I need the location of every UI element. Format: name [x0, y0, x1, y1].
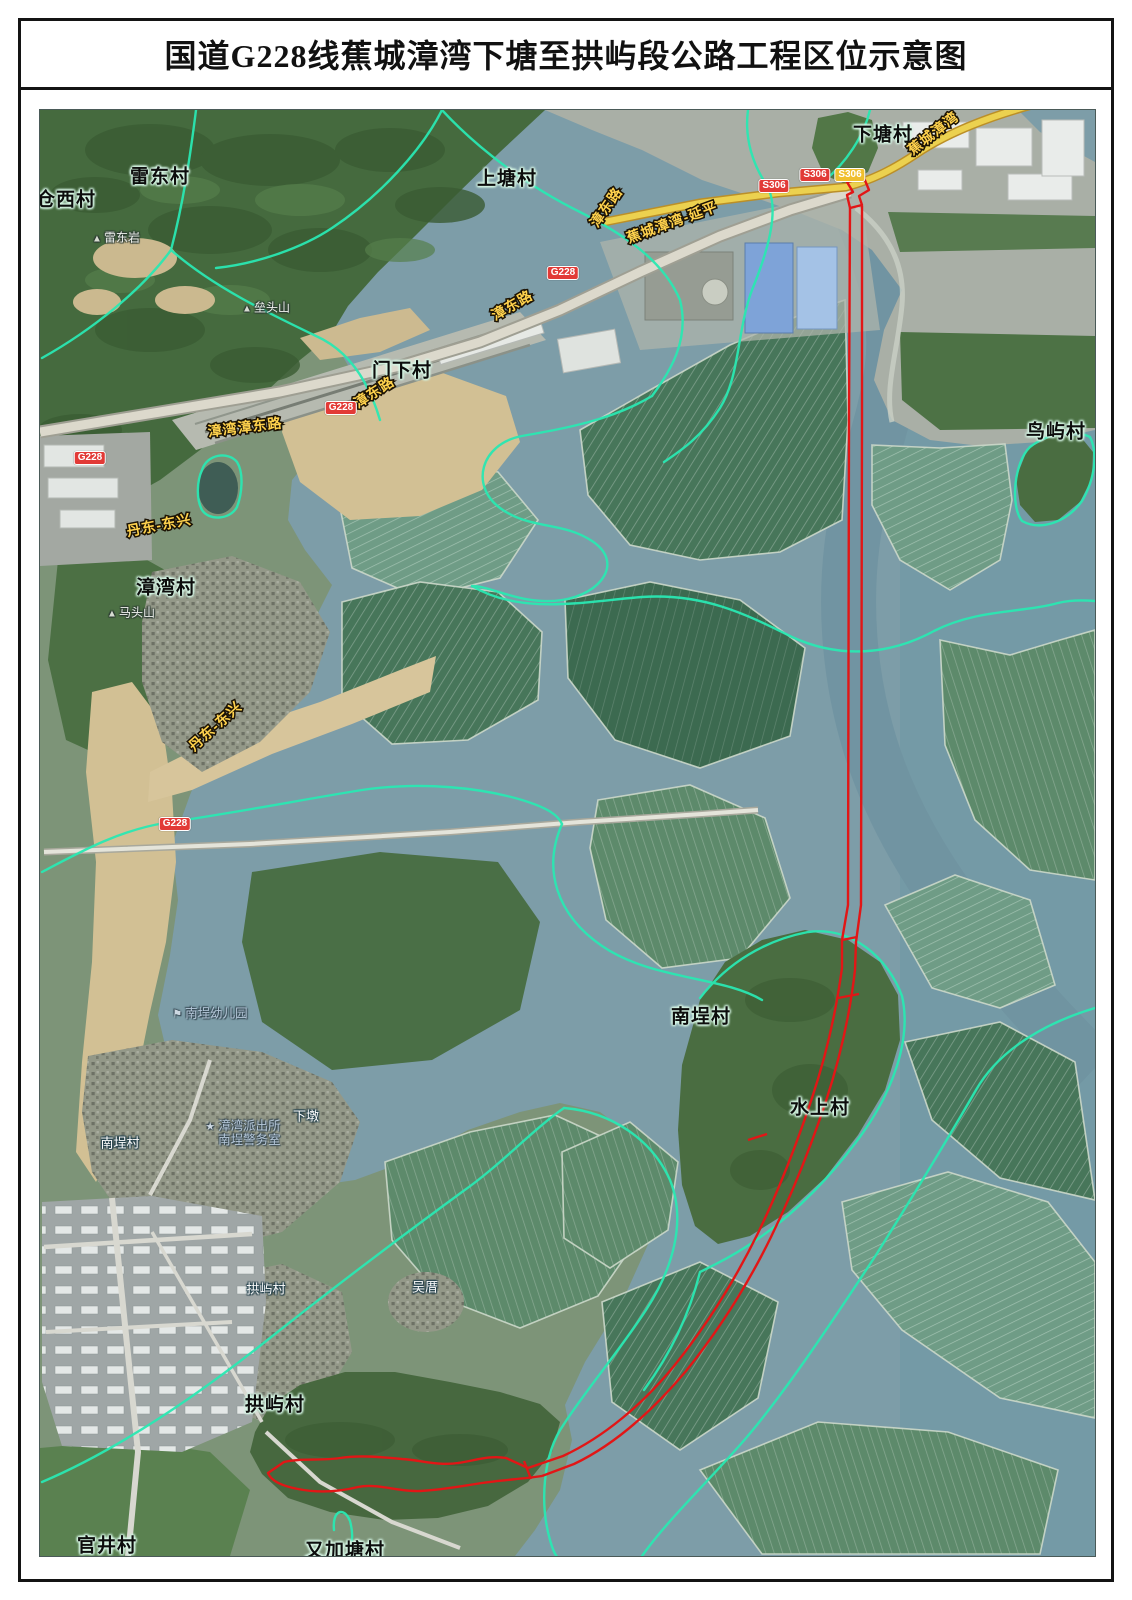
map-image	[40, 110, 1095, 1556]
title-bar: 国道G228线蕉城漳湾下塘至拱屿段公路工程区位示意图	[21, 21, 1111, 90]
map-container: 仓西村雷东村上塘村下塘村门下村漳湾村鸟屿村南埕村水上村拱屿村官井村又加塘村南埕村…	[40, 110, 1095, 1556]
page-title: 国道G228线蕉城漳湾下塘至拱屿段公路工程区位示意图	[165, 31, 968, 77]
page: 国道G228线蕉城漳湾下塘至拱屿段公路工程区位示意图	[0, 0, 1132, 1600]
